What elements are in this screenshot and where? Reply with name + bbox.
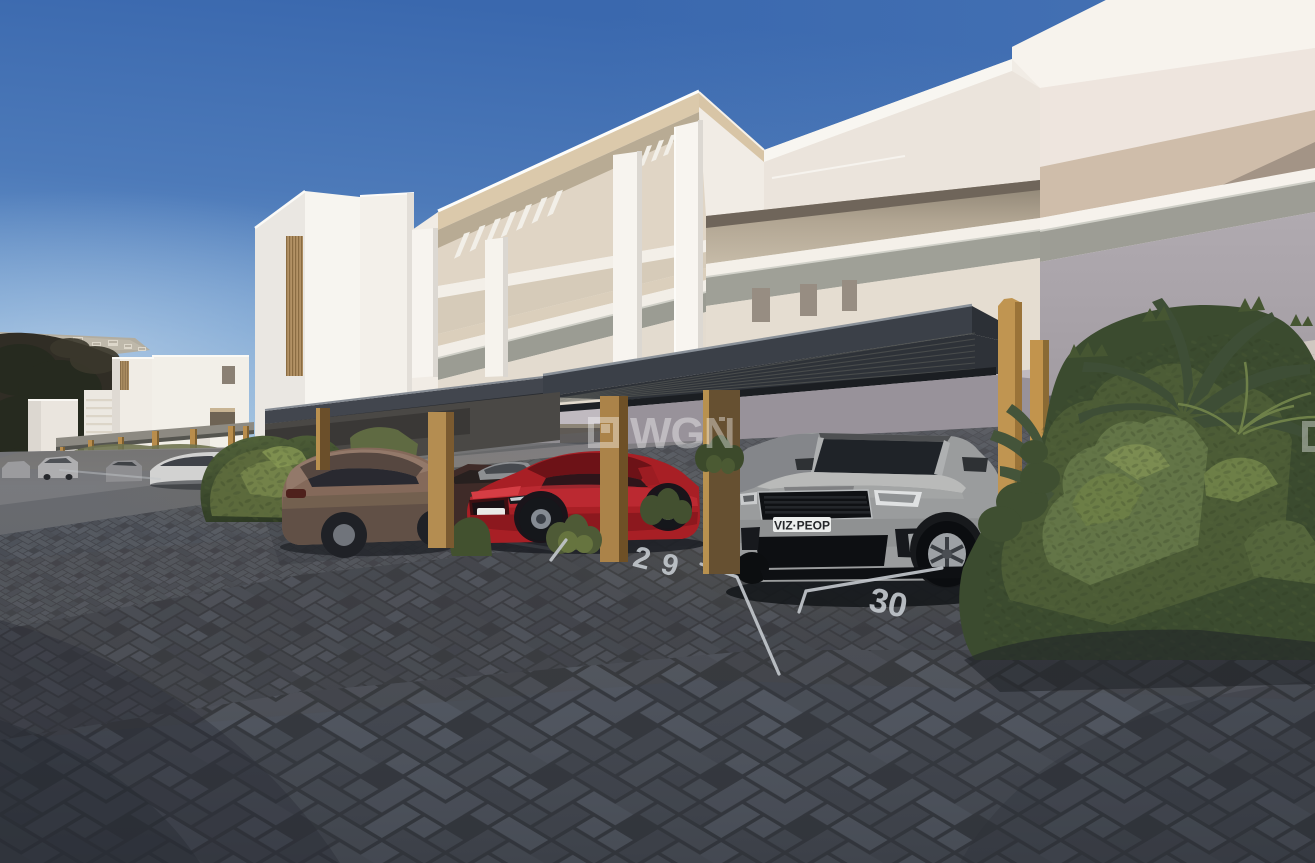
svg-text:WGN: WGN [630,409,735,458]
svg-text:VIZ·PEOP: VIZ·PEOP [774,519,830,533]
svg-text:30: 30 [866,581,911,626]
